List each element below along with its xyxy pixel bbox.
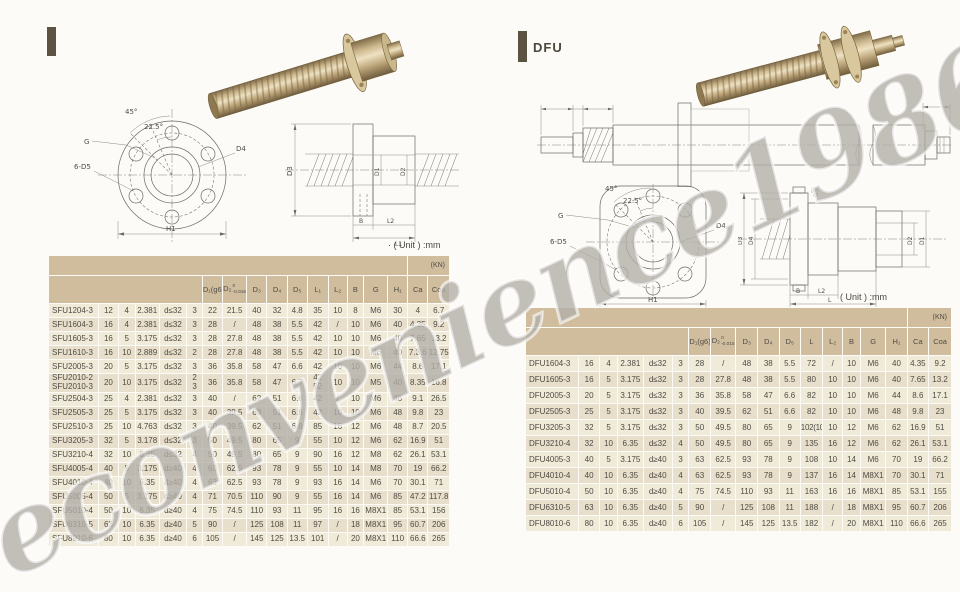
table-cell: 60.7 <box>907 500 929 516</box>
table-cell: 16 <box>823 484 843 500</box>
column-header: Coa <box>428 276 450 304</box>
table-cell: 78 <box>758 452 780 468</box>
column-header: Ca <box>408 276 428 304</box>
table-cell: 53.1 <box>408 504 428 518</box>
table-cell: 70 <box>886 468 907 484</box>
table-cell: 2 3 <box>187 374 203 393</box>
angle-225-label: 22.5° <box>144 123 163 131</box>
header-blank <box>49 276 203 304</box>
table-cell: 55 <box>307 462 328 476</box>
table-cell: 10 <box>823 388 843 404</box>
table-cell: 39.5 <box>711 404 736 420</box>
table-cell: 5 <box>118 332 135 346</box>
table-cell: 4 <box>118 304 135 318</box>
table-cell: 16 <box>328 490 347 504</box>
table-cell: 25 <box>99 406 119 420</box>
table-cell: 49.5 <box>223 434 247 448</box>
table-cell: 93 <box>736 468 758 484</box>
table-cell: 101 <box>307 532 328 546</box>
table-cell: M6 <box>364 490 388 504</box>
table-cell: 85 <box>307 420 328 434</box>
table-cell: 9.8 <box>907 404 929 420</box>
d2-tolerance: 0-0.015 <box>721 336 735 346</box>
column-header: L₁ <box>307 276 328 304</box>
table-cell: 40 <box>886 372 907 388</box>
table-cell: 145 <box>736 516 758 532</box>
table-cell: 6 <box>187 532 203 546</box>
table-cell: 8.35 <box>408 374 428 393</box>
table-cell: 17.1 <box>428 360 450 374</box>
table-cell: 16 <box>99 332 119 346</box>
table-cell: 95 <box>388 518 408 532</box>
table-cell: M8X1 <box>364 518 388 532</box>
table-cell: 6.35 <box>135 518 159 532</box>
table-row: SFU8010-680106.35d≥406105/14512513.5101/… <box>49 532 450 546</box>
table-cell: / <box>823 516 843 532</box>
table-cell: 16 <box>99 346 119 360</box>
table-cell: 25 <box>579 404 600 420</box>
table-cell: 10 <box>118 448 135 462</box>
table-cell: 16 <box>823 436 843 452</box>
table-row: DFU1605-31653.175d≤3232827.848385.580101… <box>526 372 952 388</box>
table-cell: 78 <box>267 476 287 490</box>
table-cell: 6.35 <box>135 448 159 462</box>
table-cell: M6 <box>364 304 388 318</box>
table-cell: 2.381 <box>135 392 159 406</box>
column-header: D₁(g6) <box>689 328 711 356</box>
table-cell: 9 <box>779 452 800 468</box>
table-cell: M8X1 <box>364 532 388 546</box>
table-cell: 40 <box>388 346 408 360</box>
table-cell: 3 <box>187 420 203 434</box>
table-cell: 10 <box>328 360 347 374</box>
table-cell: 11 <box>779 484 800 500</box>
table-cell: 90 <box>307 448 328 462</box>
table-cell: 6.6 <box>287 360 307 374</box>
table-cell: 16 <box>99 318 119 332</box>
table-cell: d≤32 <box>643 356 672 372</box>
model-cell: DFU2505-3 <box>526 404 579 420</box>
table-cell: 3.178 <box>135 434 159 448</box>
column-header: D₄ <box>758 328 780 356</box>
table-cell: 12 <box>347 448 364 462</box>
table-cell: 42 <box>307 392 328 406</box>
table-cell: 105 <box>689 516 711 532</box>
table-cell: 4 <box>672 484 689 500</box>
table-cell: 110 <box>736 484 758 500</box>
table-row: SFU4010-440106.35d≥4046362.593789931614M… <box>49 476 450 490</box>
table-cell: 16.9 <box>408 434 428 448</box>
table-cell: 63 <box>202 476 222 490</box>
table-cell: 3.175 <box>618 388 643 404</box>
table-cell: / <box>823 356 843 372</box>
table-cell: 85 <box>886 484 907 500</box>
table-cell: 3.175 <box>618 372 643 388</box>
table-cell: 28 <box>689 372 711 388</box>
model-cell: DFU5010-4 <box>526 484 579 500</box>
table-cell: 32 <box>99 434 119 448</box>
table-cell: 10 <box>600 468 618 484</box>
dfu-shaft-drawing <box>535 95 955 187</box>
table-cell: 3 <box>187 332 203 346</box>
table-cell: 71 <box>202 490 222 504</box>
table-cell: 27.8 <box>711 372 736 388</box>
table-cell: 19 <box>408 462 428 476</box>
table-row: SFU3210-432106.35d≤3245049.580659901612M… <box>49 448 450 462</box>
table-cell: 85 <box>388 504 408 518</box>
table-cell: 10 <box>347 318 364 332</box>
table-cell: 48 <box>247 332 267 346</box>
table-row: DFU6310-563106.35d≥40590/12510811188/18M… <box>526 500 952 516</box>
table-cell: 80 <box>736 420 758 436</box>
table-cell: 10 <box>347 374 364 393</box>
model-cell: SFU2505-3 <box>49 406 99 420</box>
table-cell: 35.8 <box>223 360 247 374</box>
table-cell: 80 <box>800 372 822 388</box>
table-cell: M6 <box>860 356 885 372</box>
table-cell: 58 <box>247 360 267 374</box>
table-cell: 38 <box>267 346 287 360</box>
table-cell: / <box>328 518 347 532</box>
model-cell: SFU2504-3 <box>49 392 99 406</box>
table-cell: 10 <box>823 372 843 388</box>
table-cell: 6.35 <box>135 504 159 518</box>
table-cell: 11 <box>287 518 307 532</box>
table-cell: 10 <box>328 406 347 420</box>
table-cell: 10 <box>823 404 843 420</box>
column-header: Ca <box>907 328 929 356</box>
table-cell: 4.35 <box>907 356 929 372</box>
table-cell: M6 <box>364 476 388 490</box>
table-cell: 53.1 <box>428 448 450 462</box>
table-cell: 10 <box>347 360 364 374</box>
column-header: D₁(g6) <box>202 276 222 304</box>
model-cell: DFU8010-6 <box>526 516 579 532</box>
table-cell: 3.175 <box>618 420 643 436</box>
table-cell: d≤32 <box>159 392 187 406</box>
table-cell: 5.5 <box>779 356 800 372</box>
table-cell: 26.1 <box>408 448 428 462</box>
table-cell: 12 <box>347 434 364 448</box>
table-cell: 50 <box>99 490 119 504</box>
column-header: D₃ <box>247 276 267 304</box>
table-cell: 9.2 <box>929 356 952 372</box>
table-cell: 48 <box>886 404 907 420</box>
table-cell: 27.8 <box>223 332 247 346</box>
table-cell: 47 <box>267 374 287 393</box>
table-cell: d≥40 <box>643 500 672 516</box>
d5-label: D5 <box>813 188 820 197</box>
dfu-table: (KN)D₁(g6)D₂0-0.015D₃D₄D₅LL₂BGH₁CaCoaDFU… <box>525 307 952 532</box>
table-cell: 10 <box>118 504 135 518</box>
table-cell: 3.175 <box>618 452 643 468</box>
table-cell: / <box>711 516 736 532</box>
table-cell: 82 <box>800 404 822 420</box>
table-cell: 105 <box>202 532 222 546</box>
table-cell: 3.175 <box>135 332 159 346</box>
table-cell: 50 <box>202 434 222 448</box>
table-cell: 66.6 <box>907 516 929 532</box>
bolt-holes-label: 6-D5 <box>550 238 567 246</box>
table-cell: 28 <box>689 356 711 372</box>
table-cell: M8X1 <box>860 500 885 516</box>
table-cell: 14 <box>347 490 364 504</box>
table-cell: M6 <box>364 318 388 332</box>
table-cell: 63 <box>579 500 600 516</box>
table-cell: 4 <box>187 504 203 518</box>
g-thread-label: G <box>558 212 563 220</box>
table-cell: 75 <box>202 504 222 518</box>
table-cell: 6.6 <box>287 392 307 406</box>
table-cell: 10 <box>328 346 347 360</box>
table-cell: 80 <box>247 434 267 448</box>
column-header: G <box>860 328 885 356</box>
table-row: SFU3205-33253.178d≤3235049.580659551012M… <box>49 434 450 448</box>
table-cell: 102(106) <box>800 420 822 436</box>
table-cell: 4 <box>187 448 203 462</box>
table-cell: 40 <box>202 420 222 434</box>
table-cell: 71 <box>929 468 952 484</box>
table-cell: 4.8 <box>287 304 307 318</box>
table-cell: 13.2 <box>929 372 952 388</box>
table-cell: 18 <box>347 518 364 532</box>
table-cell: d≥40 <box>159 462 187 476</box>
dfu-section-title: DFU <box>533 40 563 55</box>
kn-unit-header: (KN) <box>907 308 951 328</box>
table-cell: 6.35 <box>618 516 643 532</box>
table-cell: / <box>223 318 247 332</box>
table-cell: 4 <box>672 436 689 452</box>
model-cell: DFU1605-3 <box>526 372 579 388</box>
table-cell: 16 <box>823 468 843 484</box>
table-cell: 4 <box>187 476 203 490</box>
table-cell: 42 52 <box>307 374 328 393</box>
table-cell: 156 <box>428 504 450 518</box>
table-cell: 62.5 <box>223 476 247 490</box>
header-blank <box>526 308 908 328</box>
table-cell: M6 <box>364 360 388 374</box>
table-cell: / <box>328 532 347 546</box>
model-cell: SFU8010-6 <box>49 532 99 546</box>
table-row: SFU2504-32542.381d≤32340/62516.642/10M64… <box>49 392 450 406</box>
table-cell: 48 <box>736 372 758 388</box>
table-cell: 42 <box>307 406 328 420</box>
table-cell: 12 <box>843 420 861 436</box>
table-cell: 63 <box>202 462 222 476</box>
model-cell: SFU2005-3 <box>49 360 99 374</box>
table-cell: 8 <box>347 304 364 318</box>
table-cell: 9 <box>287 434 307 448</box>
table-cell: 95 <box>307 504 328 518</box>
sfu-section-marker-bar <box>47 27 56 56</box>
d2-label: D2 <box>400 167 407 176</box>
table-cell: 6.6 <box>287 406 307 420</box>
table-cell: 63 <box>247 406 267 420</box>
table-row: SFU2010-2 SFU2010-320103.175d≤322 33635.… <box>49 374 450 393</box>
table-cell: 3 <box>187 434 203 448</box>
table-cell: d≤32 <box>643 388 672 404</box>
table-cell: 9 <box>779 420 800 436</box>
table-cell: / <box>223 518 247 532</box>
table-cell: 20 <box>843 516 861 532</box>
table-cell: 9 <box>287 462 307 476</box>
d4-label: D4 <box>748 236 755 245</box>
table-cell: 47.2 <box>408 490 428 504</box>
table-cell: 70.5 <box>223 490 247 504</box>
table-cell: 16 <box>328 504 347 518</box>
table-cell: 40 <box>579 468 600 484</box>
table-cell: 5 <box>600 388 618 404</box>
table-cell: 10 <box>118 346 135 360</box>
table-cell: 3 <box>187 304 203 318</box>
table-cell: 5 <box>118 462 135 476</box>
table-cell: 10 <box>600 484 618 500</box>
table-cell: 16 <box>843 484 861 500</box>
dfu-flange-drawing: 45° 22.5° G 6-D5 D4 H1 <box>550 182 760 310</box>
sfu-unit-label: · ( Unit ) :mm <box>388 240 441 250</box>
table-cell: M6 <box>364 392 388 406</box>
table-cell: M8 <box>364 448 388 462</box>
table-cell: 72 <box>800 356 822 372</box>
column-header: D₂0-0.015 <box>223 276 247 304</box>
table-cell: M6 <box>364 346 388 360</box>
table-row: DFU5010-450106.35d≥4047574.5110931116316… <box>526 484 952 500</box>
table-cell: 10 <box>600 500 618 516</box>
table-cell: 182 <box>800 516 822 532</box>
table-cell: 3 <box>187 406 203 420</box>
table-cell: 36 <box>202 374 222 393</box>
table-cell: 265 <box>929 516 952 532</box>
table-cell: 95 <box>886 500 907 516</box>
table-cell: 35.8 <box>223 374 247 393</box>
table-cell: 17.1 <box>929 388 952 404</box>
table-cell: 4 <box>187 490 203 504</box>
table-cell: d≥40 <box>643 516 672 532</box>
table-cell: 3 <box>187 392 203 406</box>
table-cell: 10 <box>118 420 135 434</box>
table-cell: 108 <box>758 500 780 516</box>
table-cell: 125 <box>758 516 780 532</box>
table-row: DFU3205-33253.175d≤3235049.580659102(106… <box>526 420 952 436</box>
table-row: SFU1605-31653.175d≤3232827.848385.542101… <box>49 332 450 346</box>
table-cell: 10 <box>823 420 843 436</box>
table-cell: 110 <box>247 504 267 518</box>
table-cell: 90 <box>689 500 711 516</box>
table-cell: 6.35 <box>618 500 643 516</box>
table-cell: d≥40 <box>643 484 672 500</box>
table-cell: 20 <box>347 532 364 546</box>
table-cell: 32 <box>267 304 287 318</box>
table-cell: 49.5 <box>711 436 736 452</box>
table-cell: 10 <box>118 476 135 490</box>
table-cell: / <box>223 392 247 406</box>
table-cell: 32 <box>579 420 600 436</box>
table-cell: 20.5 <box>428 420 450 434</box>
table-cell: 6.35 <box>618 468 643 484</box>
table-cell: 65 <box>267 434 287 448</box>
table-cell: / <box>823 500 843 516</box>
bolt-holes-label: 6-D5 <box>74 163 91 171</box>
table-cell: 5 <box>600 372 618 388</box>
table-cell: 48 <box>388 406 408 420</box>
column-header: B <box>347 276 364 304</box>
table-cell: 10 <box>328 434 347 448</box>
table-cell: 85 <box>388 490 408 504</box>
table-cell: 3.175 <box>135 406 159 420</box>
table-cell: 39.5 <box>223 406 247 420</box>
table-cell: 8.7 <box>408 420 428 434</box>
table-cell: 80 <box>736 436 758 452</box>
angle-225-label: 22.5° <box>623 197 642 205</box>
table-cell: 5 <box>118 360 135 374</box>
table-cell: 62.5 <box>223 462 247 476</box>
table-cell: 137 <box>800 468 822 484</box>
table-cell: 63 <box>689 452 711 468</box>
column-header: L₂ <box>328 276 347 304</box>
table-cell: d≤32 <box>643 436 672 452</box>
table-cell: 93 <box>247 462 267 476</box>
b-label: B <box>796 288 800 295</box>
table-cell: 90 <box>267 490 287 504</box>
table-cell: M8X1 <box>860 468 885 484</box>
l-label: L <box>828 297 832 304</box>
kn-unit-header: (KN) <box>408 256 450 276</box>
table-cell: 62 <box>886 436 907 452</box>
column-header: G <box>364 276 388 304</box>
spec-table: (KN)D₁(g6)D₂0-0.015D₃D₄D₅L₁L₂BGH₁CaCoaSF… <box>48 255 450 547</box>
table-cell: 10 <box>118 532 135 546</box>
table-cell: d≤32 <box>643 404 672 420</box>
table-cell: 14 <box>347 476 364 490</box>
table-cell: M6 <box>364 332 388 346</box>
table-cell: 12 <box>843 436 861 452</box>
table-cell: 2.381 <box>135 318 159 332</box>
table-cell: 42 <box>307 346 328 360</box>
table-cell: 25 <box>99 420 119 434</box>
table-cell: 40 <box>99 462 119 476</box>
table-cell: 82 <box>800 388 822 404</box>
table-cell: 40 <box>247 304 267 318</box>
table-cell: 38 <box>267 332 287 346</box>
table-cell: 55 <box>307 434 328 448</box>
table-cell: 50 <box>689 436 711 452</box>
table-cell: 110 <box>886 516 907 532</box>
table-cell: 4 <box>187 462 203 476</box>
table-cell: 14 <box>347 462 364 476</box>
table-cell: 18 <box>843 500 861 516</box>
table-cell: 53.1 <box>929 436 952 452</box>
table-cell: 90 <box>202 518 222 532</box>
dfu-section-drawing: D3 D4 D5 D2 D1 B L2 L <box>738 183 960 308</box>
table-cell: 6.8 <box>287 420 307 434</box>
table-cell: 7.65 <box>408 332 428 346</box>
table-cell: 66.6 <box>408 532 428 546</box>
table-cell: 16 <box>579 372 600 388</box>
table-cell: 66.2 <box>929 452 952 468</box>
table-cell: 51 <box>267 392 287 406</box>
table-cell: 62 <box>736 404 758 420</box>
table-cell: d≤32 <box>159 448 187 462</box>
model-cell: DFU3210-4 <box>526 436 579 452</box>
d3-label: D3 <box>738 236 744 245</box>
table-cell: 5 <box>600 420 618 436</box>
table-cell: 93 <box>307 476 328 490</box>
table-row: DFU3210-432106.35d≤3245049.5806591351612… <box>526 436 952 452</box>
table-cell: 38 <box>758 356 780 372</box>
table-cell: 3.175 <box>135 360 159 374</box>
table-cell: 16 <box>328 476 347 490</box>
table-cell: d≤32 <box>159 304 187 318</box>
